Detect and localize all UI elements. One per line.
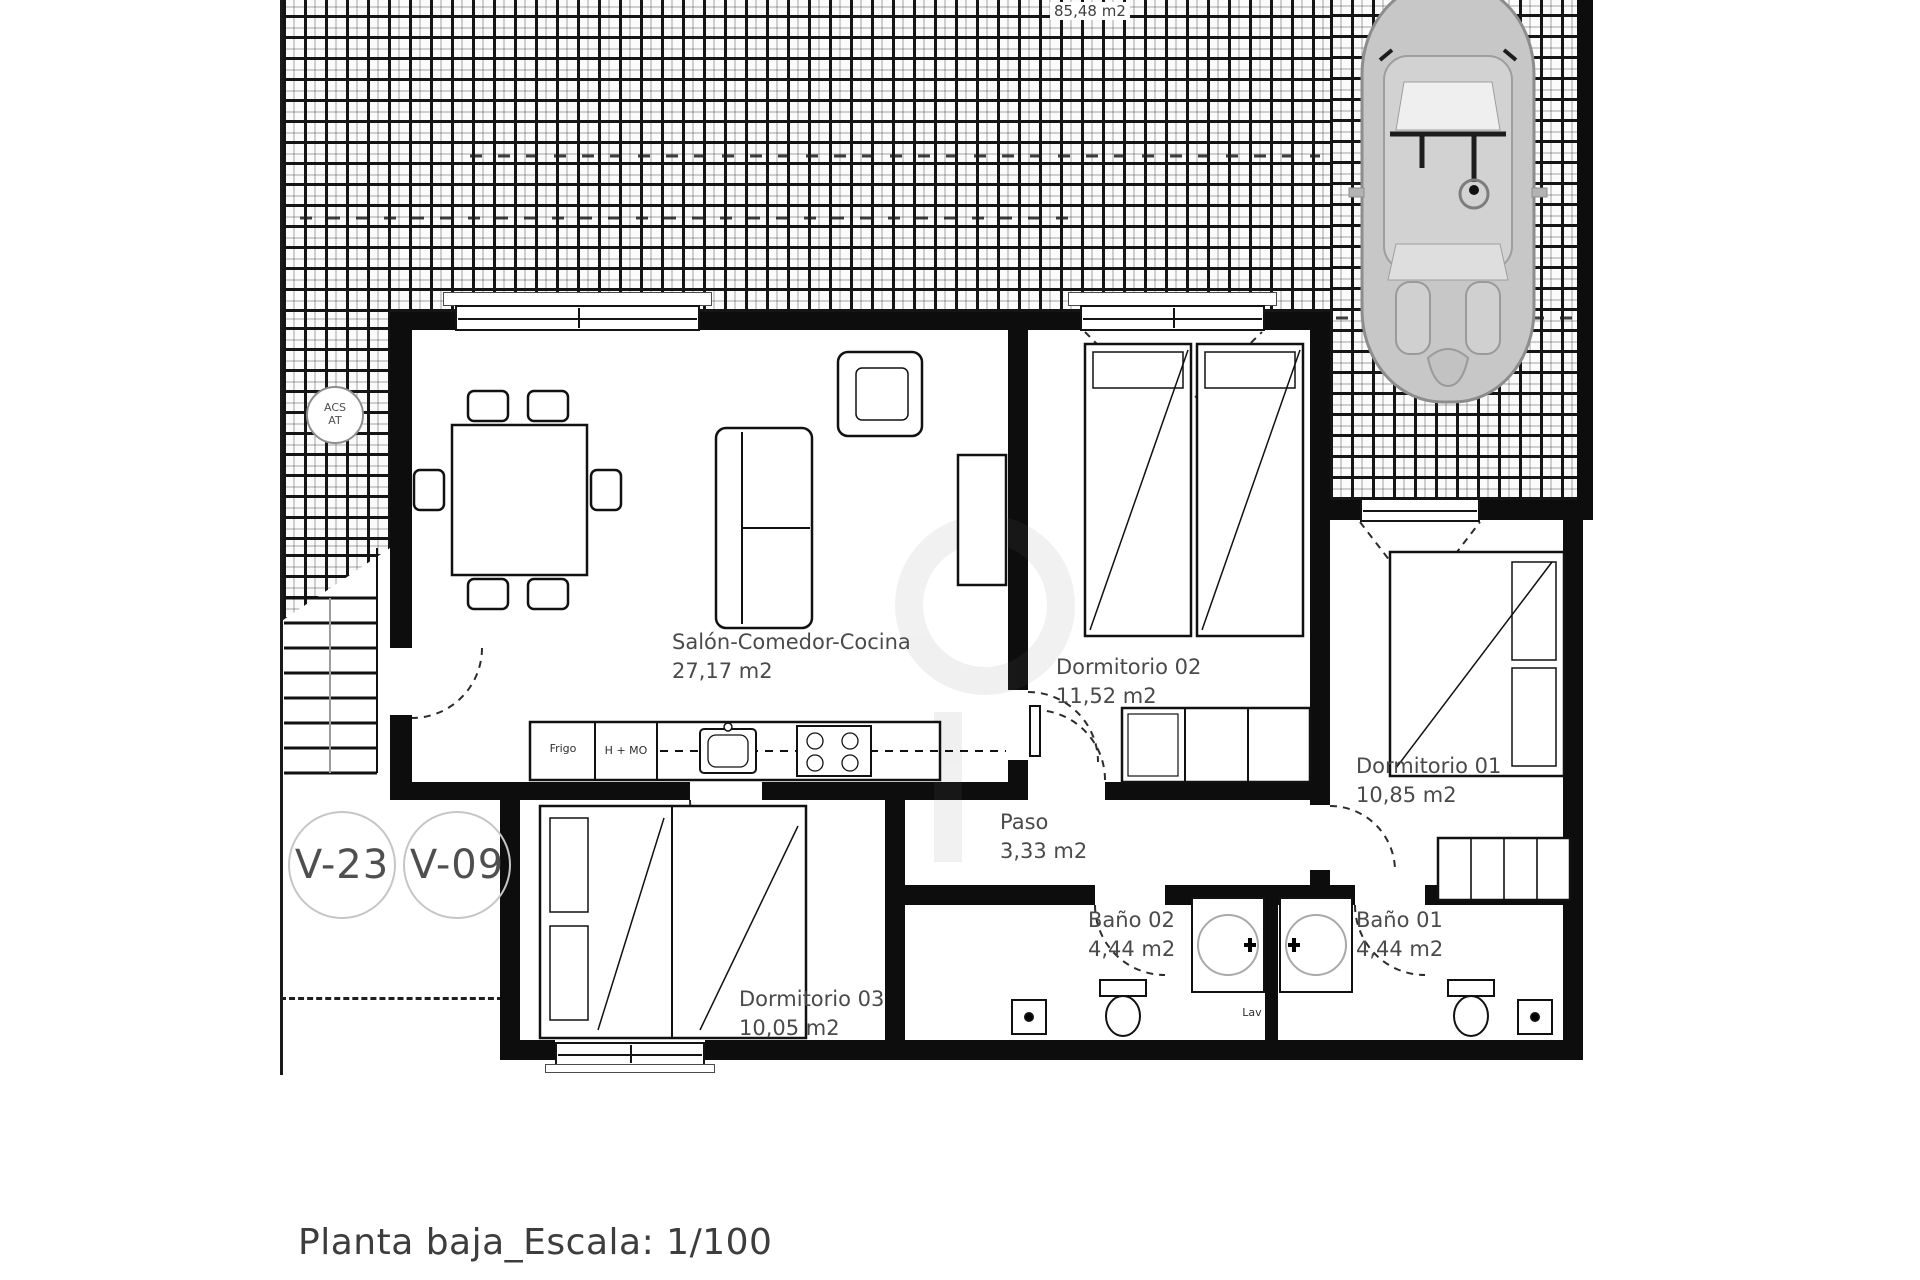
room-name: Dormitorio 02 [1056,653,1201,682]
car-mirror-left [1349,188,1364,197]
car-windshield [1396,82,1500,130]
label-paso: Paso 3,33 m2 [1000,808,1087,867]
room-name: Baño 01 [1356,906,1443,935]
room-area: 4,44 m2 [1356,935,1443,964]
label-dorm03: Dormitorio 03 10,05 m2 [739,985,884,1044]
room-name: Paso [1000,808,1087,837]
room-area: 10,05 m2 [739,1014,884,1043]
sofa [716,352,922,628]
oven-micro-label: H + MO [597,744,655,757]
shower-bano01 [1280,898,1352,992]
washbasin-label: Lav [1232,1006,1272,1019]
acs-line2: AT [328,415,341,428]
room-area: 27,17 m2 [672,657,911,686]
toilet-bano01 [1448,980,1494,1036]
fridge-label: Frigo [533,742,593,755]
floor-plan-sheet: 85,48 m2 Salón-Comedor-Cocina 27,17 m2 D… [0,0,1920,1280]
car-seat [1466,282,1500,354]
car-seat [1396,282,1430,354]
wardrobe-dorm01 [1438,838,1570,900]
bed-dorm01 [1390,552,1564,776]
wardrobe-dorm02 [1122,708,1310,782]
room-area: 4,44 m2 [1088,935,1175,964]
window-marker-v23: V-23 [288,811,396,919]
dining-table [414,391,621,609]
room-area: 11,52 m2 [1056,682,1201,711]
label-dorm01: Dormitorio 01 10,85 m2 [1356,752,1501,811]
car-mirror-right [1532,188,1547,197]
beds-dorm02 [1085,344,1303,636]
label-bano01: Baño 01 4,44 m2 [1356,906,1443,965]
plan-linework [0,0,1920,1280]
room-area: 10,85 m2 [1356,781,1501,810]
toilet-bano02 [1100,980,1146,1036]
room-area: 3,33 m2 [1000,837,1087,866]
car-top-view [1349,0,1547,402]
cooktop [797,726,871,776]
window-marker-v09: V-09 [403,811,511,919]
acs-marker: ACS AT [306,386,364,444]
room-name: Dormitorio 01 [1356,752,1501,781]
label-bano02: Baño 02 4,44 m2 [1088,906,1175,965]
car-rear-window [1388,244,1508,280]
label-dorm02: Dormitorio 02 11,52 m2 [1056,653,1201,712]
label-salon: Salón-Comedor-Cocina 27,17 m2 [672,628,911,687]
room-name: Salón-Comedor-Cocina [672,628,911,657]
shower-bano02 [1192,898,1264,992]
terrace-area-label: 85,48 m2 [1050,2,1130,20]
door-leaf [1030,706,1040,756]
tv-unit [958,455,1006,585]
drawing-title: Planta baja_Escala: 1/100 [298,1222,772,1263]
room-name: Dormitorio 03 [739,985,884,1014]
room-name: Baño 02 [1088,906,1175,935]
stairs [284,548,377,773]
